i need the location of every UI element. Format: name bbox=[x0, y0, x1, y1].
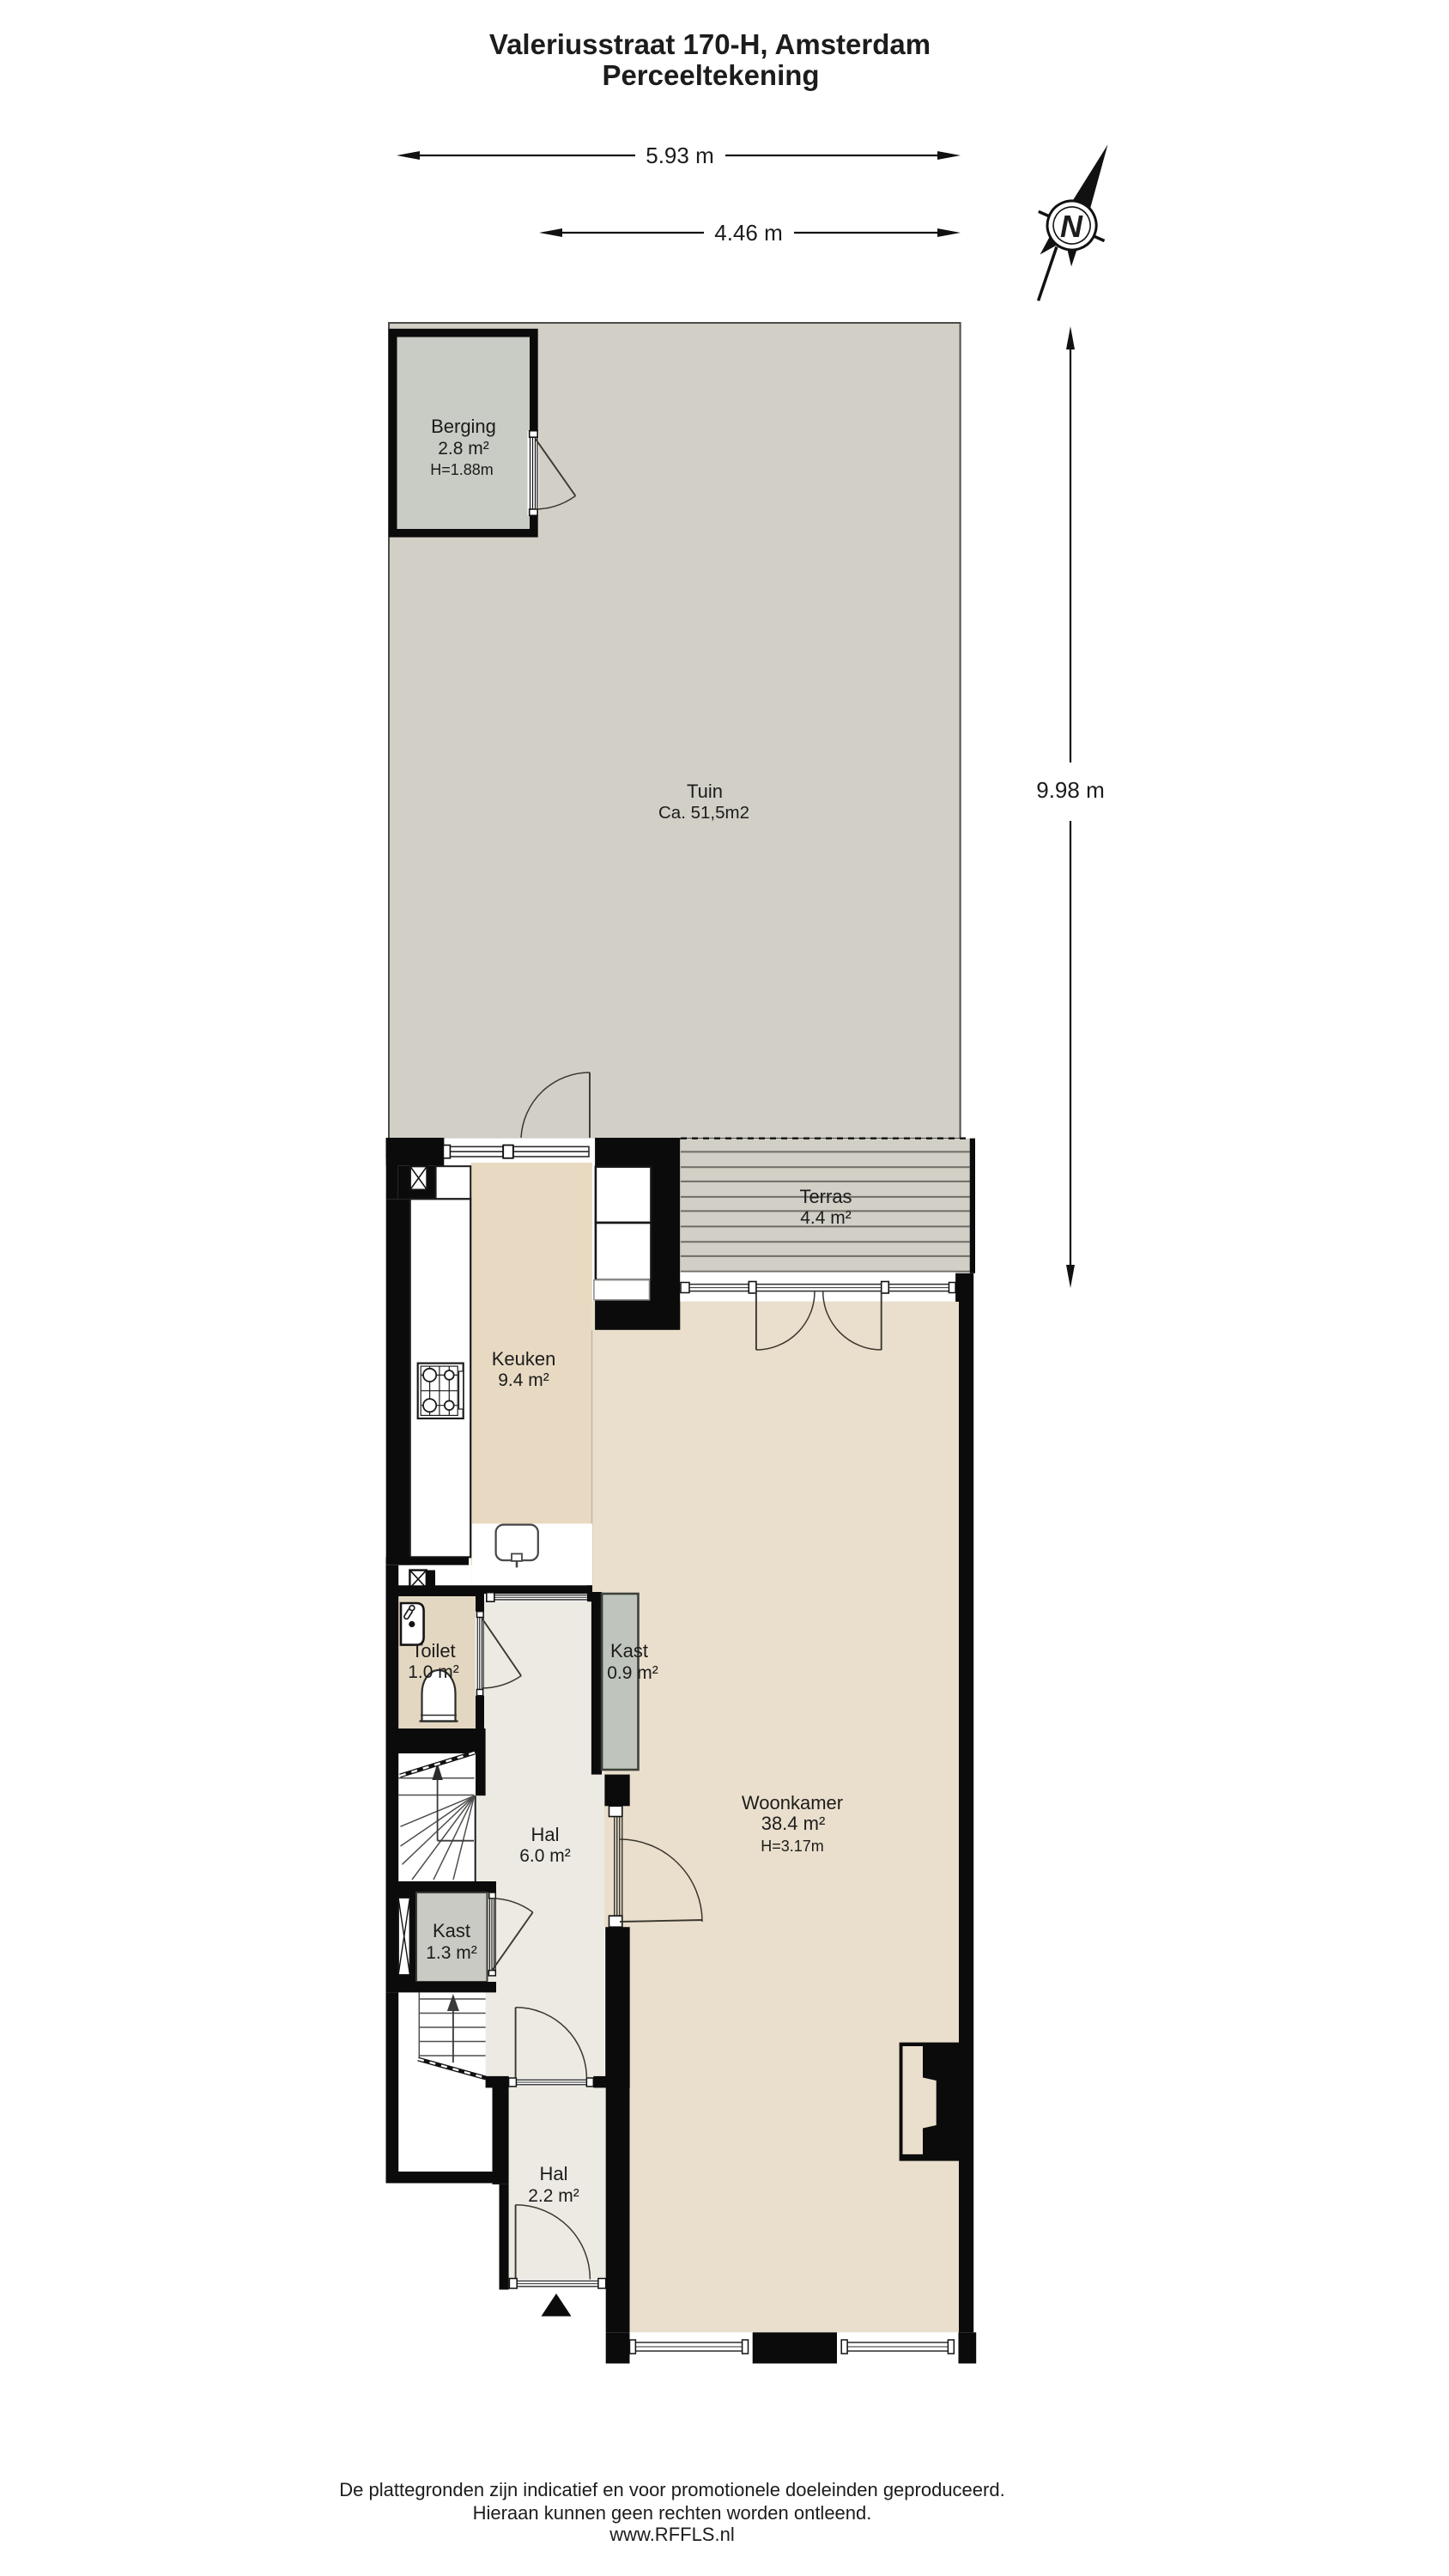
svg-text:Hieraan kunnen geen rechten wo: Hieraan kunnen geen rechten worden ontle… bbox=[473, 2502, 872, 2524]
svg-text:Hal: Hal bbox=[530, 1824, 559, 1845]
svg-text:Hal: Hal bbox=[539, 2163, 567, 2184]
svg-text:H=3.17m: H=3.17m bbox=[761, 1838, 824, 1855]
svg-text:Woonkamer: Woonkamer bbox=[742, 1792, 843, 1814]
svg-text:1.0 m²: 1.0 m² bbox=[408, 1662, 459, 1682]
svg-text:0.9 m²: 0.9 m² bbox=[607, 1663, 658, 1683]
svg-text:Berging: Berging bbox=[431, 416, 496, 437]
svg-text:4.4 m²: 4.4 m² bbox=[800, 1208, 852, 1228]
svg-text:www.RFFLS.nl: www.RFFLS.nl bbox=[609, 2524, 734, 2545]
svg-text:Ca. 51,5m2: Ca. 51,5m2 bbox=[658, 803, 749, 823]
svg-text:6.0 m²: 6.0 m² bbox=[519, 1846, 571, 1866]
svg-text:2.2 m²: 2.2 m² bbox=[528, 2186, 579, 2206]
svg-text:9.4 m²: 9.4 m² bbox=[498, 1370, 549, 1390]
svg-text:Valeriusstraat 170-H, Amsterda: Valeriusstraat 170-H, Amsterdam bbox=[489, 28, 931, 60]
svg-text:38.4 m²: 38.4 m² bbox=[761, 1813, 826, 1834]
svg-text:Keuken: Keuken bbox=[492, 1348, 556, 1370]
svg-text:Tuin: Tuin bbox=[687, 781, 723, 802]
svg-text:Toilet: Toilet bbox=[411, 1640, 455, 1662]
svg-text:Kast: Kast bbox=[433, 1920, 470, 1941]
svg-text:De plattegronden zijn indicati: De plattegronden zijn indicatief en voor… bbox=[339, 2479, 1004, 2500]
svg-text:2.8 m²: 2.8 m² bbox=[438, 439, 489, 459]
svg-text:4.46 m: 4.46 m bbox=[714, 220, 783, 246]
svg-text:Kast: Kast bbox=[610, 1640, 648, 1662]
svg-text:H=1.88m: H=1.88m bbox=[430, 461, 494, 478]
svg-text:Terras: Terras bbox=[799, 1186, 852, 1207]
svg-text:9.98 m: 9.98 m bbox=[1036, 777, 1105, 803]
svg-text:5.93 m: 5.93 m bbox=[646, 143, 714, 168]
svg-text:N: N bbox=[1060, 209, 1083, 244]
svg-text:1.3 m²: 1.3 m² bbox=[426, 1943, 477, 1963]
svg-text:Perceeltekening: Perceeltekening bbox=[602, 59, 819, 91]
